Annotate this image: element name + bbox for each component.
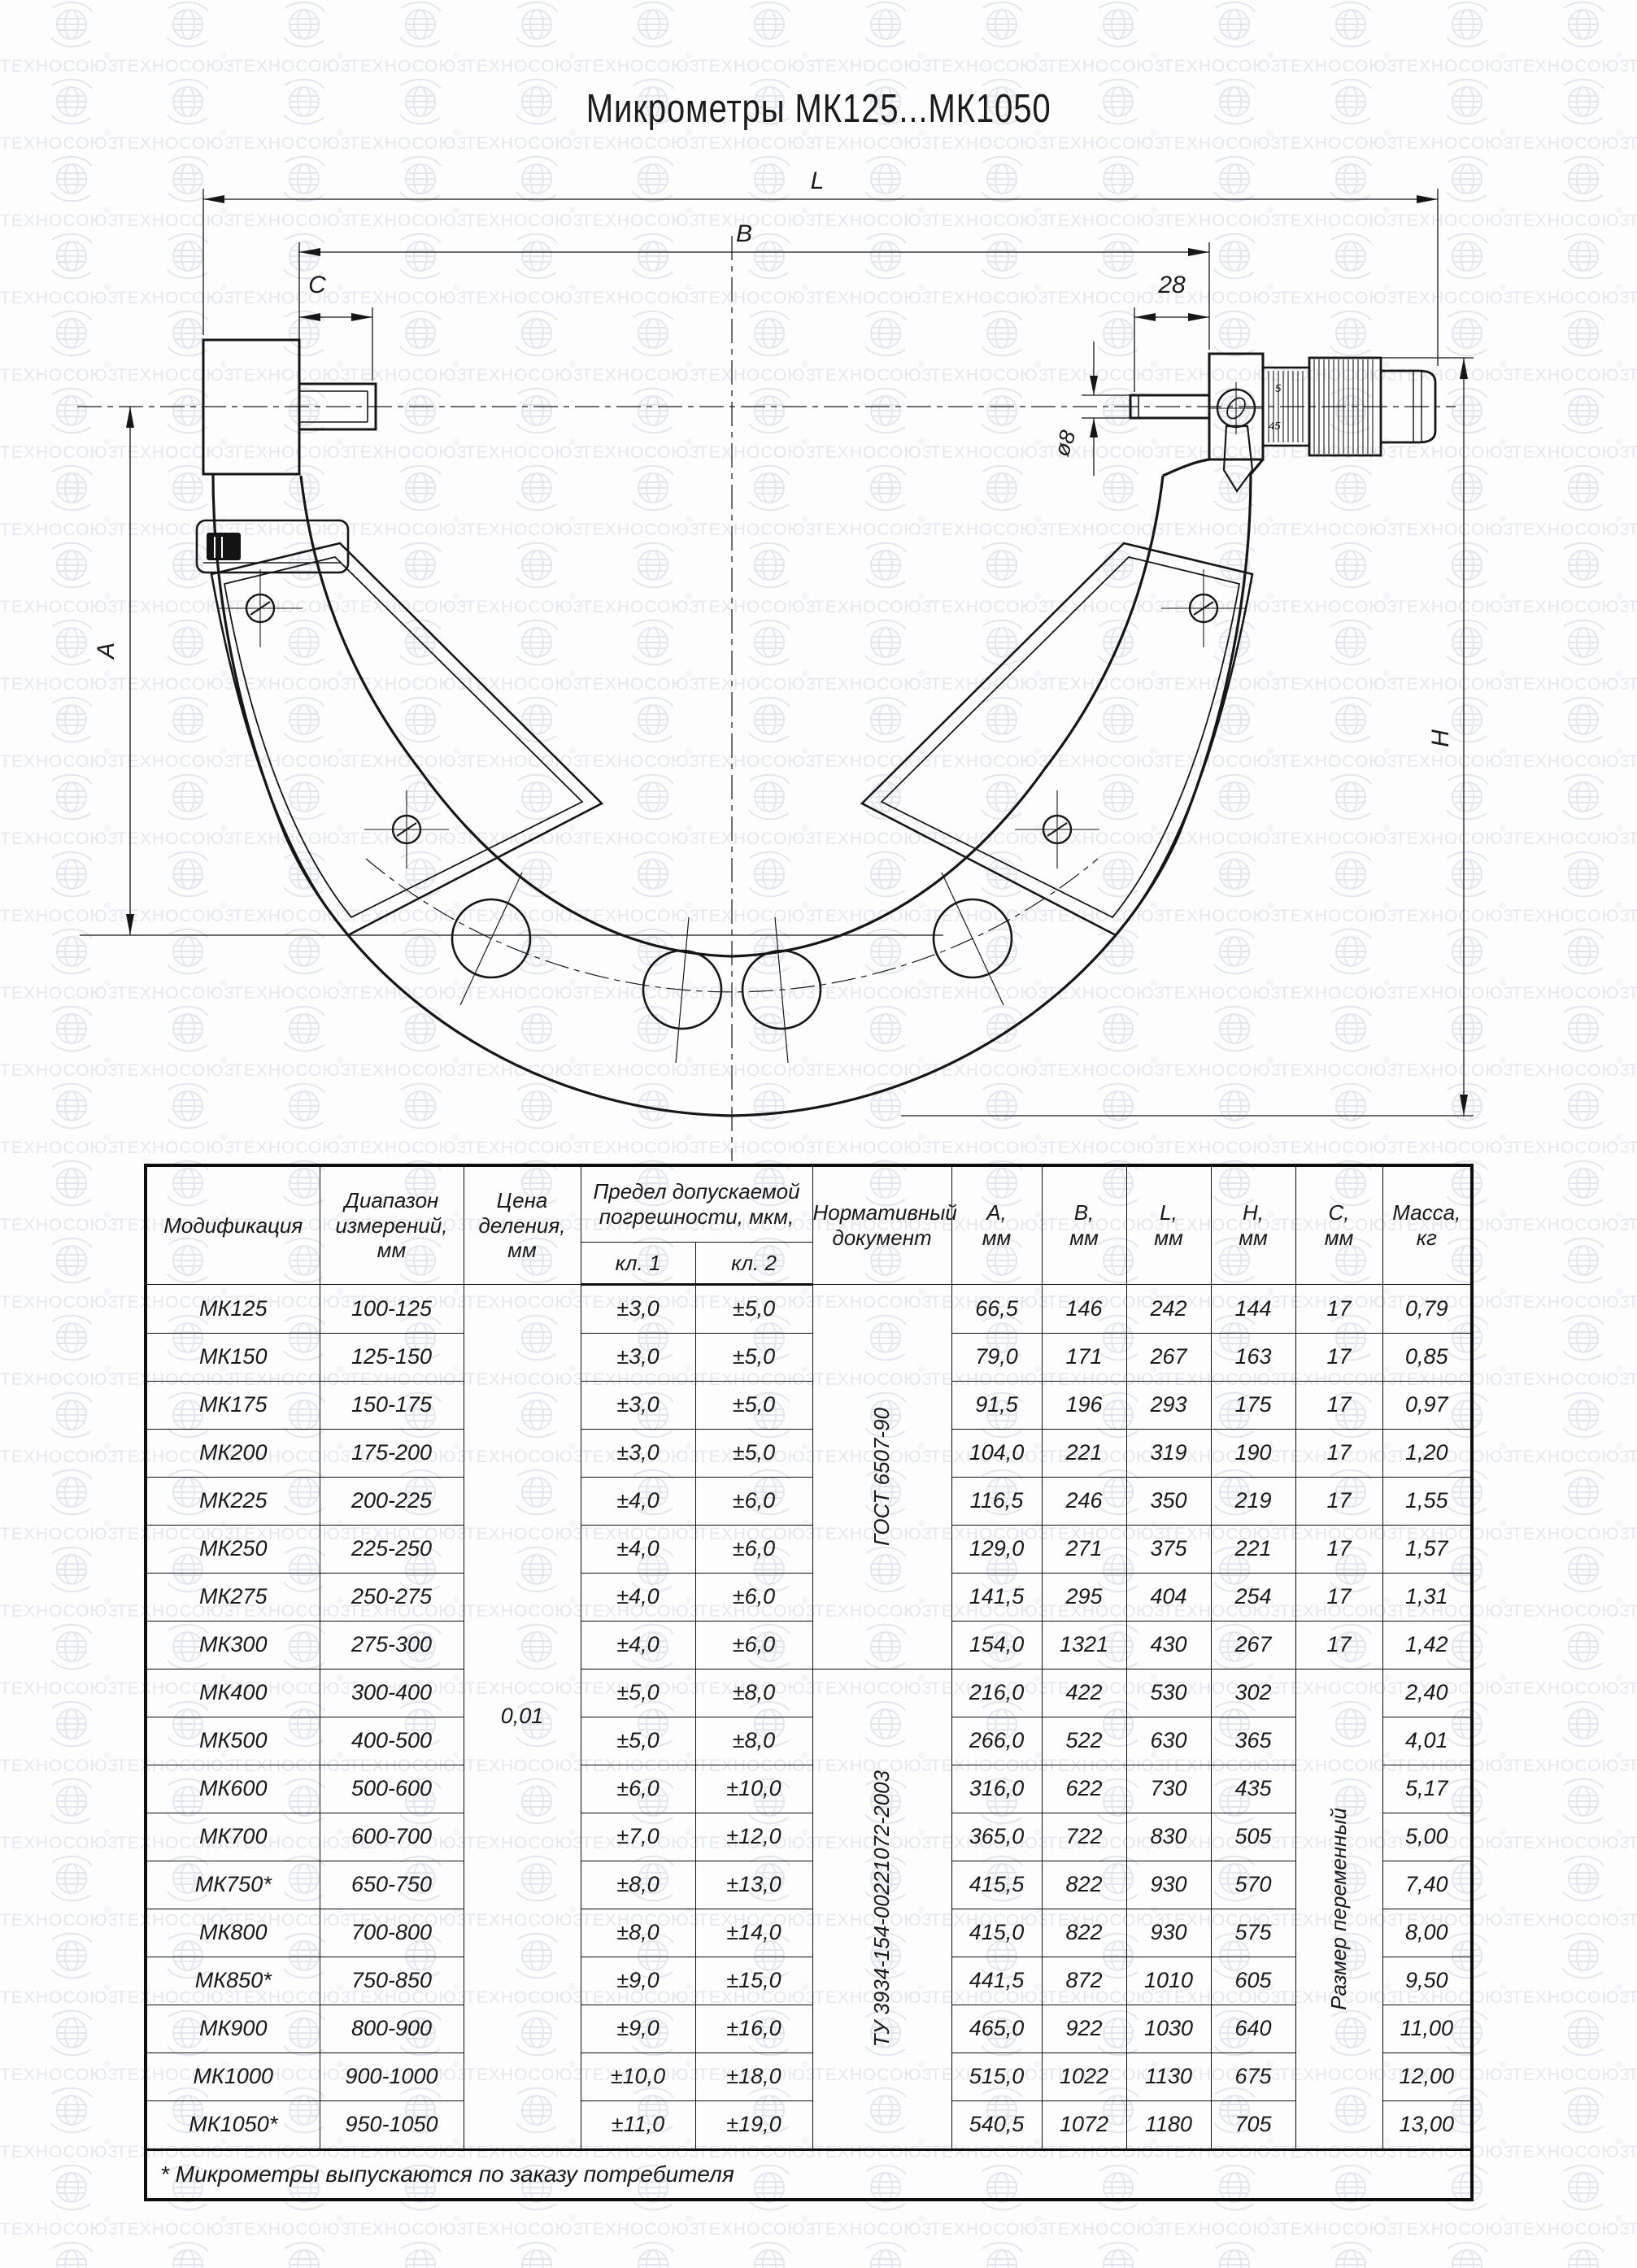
table-row: МК600 500-600 ±6,0 ±10,0 316,0 622 730 4… <box>146 1765 1472 1813</box>
cell-kl2: ±5,0 <box>695 1430 812 1478</box>
cell-kl1: ±9,0 <box>581 1957 695 2005</box>
right-pad <box>862 543 1252 935</box>
cell-mass: 2,40 <box>1382 1669 1472 1717</box>
table-row: МК200 175-200 ±3,0 ±5,0 104,0 221 319 19… <box>146 1430 1472 1478</box>
cell-b: 1022 <box>1042 2053 1126 2101</box>
col-header-doc: Нормативный документ <box>812 1165 951 1285</box>
cell-model: МК250 <box>146 1526 320 1574</box>
cell-range: 225-250 <box>320 1526 464 1574</box>
cell-l: 319 <box>1126 1430 1211 1478</box>
cell-kl1: ±5,0 <box>581 1669 695 1717</box>
cell-c: 17 <box>1295 1430 1382 1478</box>
dimensions <box>80 189 1474 1116</box>
cell-kl2: ±6,0 <box>695 1622 812 1669</box>
cell-range: 300-400 <box>320 1669 464 1717</box>
cell-kl1: ±11,0 <box>581 2101 695 2150</box>
col-header-a: A, мм <box>951 1165 1042 1285</box>
barrel-mark-5: 5 <box>1275 382 1282 394</box>
cell-mass: 8,00 <box>1382 1909 1472 1957</box>
col-header-error: Предел допускаемой погрешности, мкм, <box>581 1165 812 1243</box>
dimension-arrows <box>126 195 1468 1116</box>
cell-range: 600-700 <box>320 1813 464 1861</box>
cell-h: 302 <box>1211 1669 1295 1717</box>
cell-mass: 1,57 <box>1382 1526 1472 1574</box>
cell-kl1: ±4,0 <box>581 1574 695 1622</box>
cell-b: 822 <box>1042 1861 1126 1909</box>
cell-b: 295 <box>1042 1574 1126 1622</box>
dim-label-L: L <box>811 168 825 194</box>
cell-h: 570 <box>1211 1861 1295 1909</box>
cell-range: 500-600 <box>320 1765 464 1813</box>
cell-kl2: ±5,0 <box>695 1334 812 1382</box>
cell-kl2: ±6,0 <box>695 1526 812 1574</box>
cell-kl2: ±10,0 <box>695 1765 812 1813</box>
spec-table: Модификация Диапазон измерений, мм Цена … <box>144 1164 1474 2201</box>
cell-b: 872 <box>1042 1957 1126 2005</box>
cell-a: 91,5 <box>951 1382 1042 1430</box>
cell-doc-tu: ТУ 3934-154-00221072-2003 <box>812 1669 951 2150</box>
cell-h: 640 <box>1211 2005 1295 2053</box>
cell-kl1: ±3,0 <box>581 1334 695 1382</box>
cell-kl1: ±4,0 <box>581 1622 695 1669</box>
cell-h: 365 <box>1211 1717 1295 1765</box>
table-row: МК1000 900-1000 ±10,0 ±18,0 515,0 1022 1… <box>146 2053 1472 2101</box>
cell-mass: 5,00 <box>1382 1813 1472 1861</box>
lock-lever <box>1210 382 1262 491</box>
cell-h: 575 <box>1211 1909 1295 1957</box>
cell-b: 422 <box>1042 1669 1126 1717</box>
dim-label-d8: ø8 <box>1049 428 1080 459</box>
cell-kl1: ±5,0 <box>581 1717 695 1765</box>
cell-h: 705 <box>1211 2101 1295 2150</box>
col-header-c: C, мм <box>1295 1165 1382 1285</box>
cell-model: МК400 <box>146 1669 320 1717</box>
cell-kl1: ±10,0 <box>581 2053 695 2101</box>
table-row: МК150 125-150 ±3,0 ±5,0 79,0 171 267 163… <box>146 1334 1472 1382</box>
cell-mass: 7,40 <box>1382 1861 1472 1909</box>
cell-kl2: ±16,0 <box>695 2005 812 2053</box>
cell-b: 1321 <box>1042 1622 1126 1669</box>
cell-l: 730 <box>1126 1765 1211 1813</box>
table-row: МК275 250-275 ±4,0 ±6,0 141,5 295 404 25… <box>146 1574 1472 1622</box>
cell-mass: 0,79 <box>1382 1285 1472 1334</box>
cell-model: МК900 <box>146 2005 320 2053</box>
cell-l: 242 <box>1126 1285 1211 1334</box>
cell-c: 17 <box>1295 1574 1382 1622</box>
cell-h: 675 <box>1211 2053 1295 2101</box>
cell-h: 605 <box>1211 1957 1295 2005</box>
cell-model: МК800 <box>146 1909 320 1957</box>
cell-range: 800-900 <box>320 2005 464 2053</box>
cell-b: 146 <box>1042 1285 1126 1334</box>
cell-kl1: ±7,0 <box>581 1813 695 1861</box>
cell-l: 930 <box>1126 1909 1211 1957</box>
table-row: МК900 800-900 ±9,0 ±16,0 465,0 922 1030 … <box>146 2005 1472 2053</box>
cell-b: 922 <box>1042 2005 1126 2053</box>
col-header-b: B, мм <box>1042 1165 1126 1285</box>
cell-mass: 5,17 <box>1382 1765 1472 1813</box>
cell-kl1: ±3,0 <box>581 1382 695 1430</box>
cell-a: 515,0 <box>951 2053 1042 2101</box>
cell-model: МК125 <box>146 1285 320 1334</box>
cell-model: МК700 <box>146 1813 320 1861</box>
cell-range: 150-175 <box>320 1382 464 1430</box>
cell-kl2: ±12,0 <box>695 1813 812 1861</box>
cell-kl2: ±19,0 <box>695 2101 812 2150</box>
cell-model: МК300 <box>146 1622 320 1669</box>
cell-a: 266,0 <box>951 1717 1042 1765</box>
cell-l: 404 <box>1126 1574 1211 1622</box>
cell-h: 163 <box>1211 1334 1295 1382</box>
col-header-modification: Модификация <box>146 1165 320 1285</box>
cell-a: 141,5 <box>951 1574 1042 1622</box>
cell-c: 17 <box>1295 1478 1382 1526</box>
cell-l: 430 <box>1126 1622 1211 1669</box>
cell-doc-gost: ГОСТ 6507-90 <box>812 1285 951 1669</box>
dim-label-H: H <box>1427 729 1454 747</box>
table-row: МК1050* 950-1050 ±11,0 ±19,0 540,5 1072 … <box>146 2101 1472 2150</box>
cell-kl1: ±3,0 <box>581 1285 695 1334</box>
cell-model: МК850* <box>146 1957 320 2005</box>
cell-model: МК750* <box>146 1861 320 1909</box>
cell-b: 271 <box>1042 1526 1126 1574</box>
frame-outline <box>213 459 1263 1116</box>
cell-mass: 12,00 <box>1382 2053 1472 2101</box>
footnote: * Микрометры выпускаются по заказу потре… <box>146 2150 1472 2201</box>
cell-kl1: ±4,0 <box>581 1478 695 1526</box>
cell-kl1: ±4,0 <box>581 1526 695 1574</box>
cell-h: 175 <box>1211 1382 1295 1430</box>
cell-c: 17 <box>1295 1382 1382 1430</box>
cell-range: 125-150 <box>320 1334 464 1382</box>
table-row: МК800 700-800 ±8,0 ±14,0 415,0 822 930 5… <box>146 1909 1472 1957</box>
dim-label-C: C <box>308 272 326 298</box>
cell-range: 100-125 <box>320 1285 464 1334</box>
cell-b: 221 <box>1042 1430 1126 1478</box>
cell-kl2: ±13,0 <box>695 1861 812 1909</box>
cell-kl1: ±6,0 <box>581 1765 695 1813</box>
dim-label-B: B <box>736 220 752 247</box>
cell-range: 275-300 <box>320 1622 464 1669</box>
cell-model: МК1000 <box>146 2053 320 2101</box>
cell-a: 415,5 <box>951 1861 1042 1909</box>
cell-range: 900-1000 <box>320 2053 464 2101</box>
table-row: МК175 150-175 ±3,0 ±5,0 91,5 196 293 175… <box>146 1382 1472 1430</box>
table-row: МК300 275-300 ±4,0 ±6,0 154,0 1321 430 2… <box>146 1622 1472 1669</box>
cell-b: 246 <box>1042 1478 1126 1526</box>
micrometer-drawing: L B C 28 A H ø8 5 45 <box>0 0 1637 1163</box>
cell-l: 375 <box>1126 1526 1211 1574</box>
centerlines <box>77 236 1456 1161</box>
cell-range: 250-275 <box>320 1574 464 1622</box>
cell-kl2: ±5,0 <box>695 1382 812 1430</box>
cell-a: 465,0 <box>951 2005 1042 2053</box>
cell-a: 441,5 <box>951 1957 1042 2005</box>
cell-h: 221 <box>1211 1526 1295 1574</box>
cell-kl1: ±8,0 <box>581 1861 695 1909</box>
cell-a: 79,0 <box>951 1334 1042 1382</box>
cell-l: 1180 <box>1126 2101 1211 2150</box>
cell-a: 415,0 <box>951 1909 1042 1957</box>
cell-h: 505 <box>1211 1813 1295 1861</box>
cell-b: 1072 <box>1042 2101 1126 2150</box>
cell-l: 930 <box>1126 1861 1211 1909</box>
cell-kl2: ±8,0 <box>695 1669 812 1717</box>
dim-label-28: 28 <box>1157 272 1186 298</box>
cell-model: МК200 <box>146 1430 320 1478</box>
cell-a: 216,0 <box>951 1669 1042 1717</box>
barrel-mark-45: 45 <box>1269 420 1281 432</box>
table-row: МК250 225-250 ±4,0 ±6,0 129,0 271 375 22… <box>146 1526 1472 1574</box>
cell-a: 316,0 <box>951 1765 1042 1813</box>
cell-c: 17 <box>1295 1285 1382 1334</box>
cell-kl1: ±9,0 <box>581 2005 695 2053</box>
cell-b: 622 <box>1042 1765 1126 1813</box>
col-header-division: Цена деления, мм <box>464 1165 581 1285</box>
cell-range: 950-1050 <box>320 2101 464 2150</box>
table-row: МК125 100-125 0,01 ±3,0 ±5,0 ГОСТ 6507-9… <box>146 1285 1472 1334</box>
cell-kl1: ±8,0 <box>581 1909 695 1957</box>
cell-model: МК600 <box>146 1765 320 1813</box>
cell-model: МК150 <box>146 1334 320 1382</box>
cell-model: МК275 <box>146 1574 320 1622</box>
col-header-kl1: кл. 1 <box>581 1243 695 1285</box>
cell-l: 630 <box>1126 1717 1211 1765</box>
cell-a: 116,5 <box>951 1478 1042 1526</box>
table-row: МК400 300-400 ±5,0 ±8,0 ТУ 3934-154-0022… <box>146 1669 1472 1717</box>
cell-model: МК500 <box>146 1717 320 1765</box>
cell-l: 350 <box>1126 1478 1211 1526</box>
cell-model: МК175 <box>146 1382 320 1430</box>
cell-kl2: ±14,0 <box>695 1909 812 1957</box>
cell-c: 17 <box>1295 1526 1382 1574</box>
cell-division: 0,01 <box>464 1285 581 2150</box>
cell-h: 254 <box>1211 1574 1295 1622</box>
cell-b: 522 <box>1042 1717 1126 1765</box>
col-header-range: Диапазон измерений, мм <box>320 1165 464 1285</box>
cell-mass: 1,20 <box>1382 1430 1472 1478</box>
cell-b: 822 <box>1042 1909 1126 1957</box>
cell-h: 190 <box>1211 1430 1295 1478</box>
table-row: МК700 600-700 ±7,0 ±12,0 365,0 722 830 5… <box>146 1813 1472 1861</box>
cell-range: 700-800 <box>320 1909 464 1957</box>
cell-range: 200-225 <box>320 1478 464 1526</box>
cell-a: 154,0 <box>951 1622 1042 1669</box>
cell-kl1: ±3,0 <box>581 1430 695 1478</box>
col-header-l: L, мм <box>1126 1165 1211 1285</box>
footnote-row: * Микрометры выпускаются по заказу потре… <box>146 2150 1472 2201</box>
cell-c: 17 <box>1295 1334 1382 1382</box>
cell-mass: 0,85 <box>1382 1334 1472 1382</box>
cell-range: 750-850 <box>320 1957 464 2005</box>
dim-label-A: A <box>93 642 120 660</box>
table-row: МК750* 650-750 ±8,0 ±13,0 415,5 822 930 … <box>146 1861 1472 1909</box>
cell-mass: 1,31 <box>1382 1574 1472 1622</box>
cell-mass: 11,00 <box>1382 2005 1472 2053</box>
table-row: МК500 400-500 ±5,0 ±8,0 266,0 522 630 36… <box>146 1717 1472 1765</box>
cell-kl2: ±18,0 <box>695 2053 812 2101</box>
cell-mass: 4,01 <box>1382 1717 1472 1765</box>
table-row: МК850* 750-850 ±9,0 ±15,0 441,5 872 1010… <box>146 1957 1472 2005</box>
cell-a: 129,0 <box>951 1526 1042 1574</box>
cell-kl2: ±15,0 <box>695 1957 812 2005</box>
cell-b: 196 <box>1042 1382 1126 1430</box>
cell-h: 144 <box>1211 1285 1295 1334</box>
col-header-kl2: кл. 2 <box>695 1243 812 1285</box>
table-row: МК225 200-225 ±4,0 ±6,0 116,5 246 350 21… <box>146 1478 1472 1526</box>
cell-h: 219 <box>1211 1478 1295 1526</box>
cell-a: 365,0 <box>951 1813 1042 1861</box>
cell-kl2: ±6,0 <box>695 1574 812 1622</box>
cell-a: 104,0 <box>951 1430 1042 1478</box>
cell-l: 530 <box>1126 1669 1211 1717</box>
cell-a: 540,5 <box>951 2101 1042 2150</box>
cell-h: 435 <box>1211 1765 1295 1813</box>
cell-b: 722 <box>1042 1813 1126 1861</box>
cell-range: 650-750 <box>320 1861 464 1909</box>
cell-mass: 13,00 <box>1382 2101 1472 2150</box>
col-header-h: H, мм <box>1211 1165 1295 1285</box>
cell-h: 267 <box>1211 1622 1295 1669</box>
cell-range: 175-200 <box>320 1430 464 1478</box>
cell-kl2: ±8,0 <box>695 1717 812 1765</box>
cell-mass: 0,97 <box>1382 1382 1472 1430</box>
col-header-mass: Масса, кг <box>1382 1165 1472 1285</box>
cell-l: 830 <box>1126 1813 1211 1861</box>
cell-mass: 9,50 <box>1382 1957 1472 2005</box>
cell-model: МК225 <box>146 1478 320 1526</box>
cell-c-variable: Размер переменный <box>1295 1669 1382 2150</box>
cell-l: 1010 <box>1126 1957 1211 2005</box>
cell-b: 171 <box>1042 1334 1126 1382</box>
cell-l: 1130 <box>1126 2053 1211 2101</box>
cell-l: 293 <box>1126 1382 1211 1430</box>
cell-range: 400-500 <box>320 1717 464 1765</box>
cell-model: МК1050* <box>146 2101 320 2150</box>
cell-kl2: ±6,0 <box>695 1478 812 1526</box>
cell-l: 1030 <box>1126 2005 1211 2053</box>
cell-mass: 1,55 <box>1382 1478 1472 1526</box>
cell-mass: 1,42 <box>1382 1622 1472 1669</box>
cell-l: 267 <box>1126 1334 1211 1382</box>
cell-kl2: ±5,0 <box>695 1285 812 1334</box>
cell-c: 17 <box>1295 1622 1382 1669</box>
cell-a: 66,5 <box>951 1285 1042 1334</box>
